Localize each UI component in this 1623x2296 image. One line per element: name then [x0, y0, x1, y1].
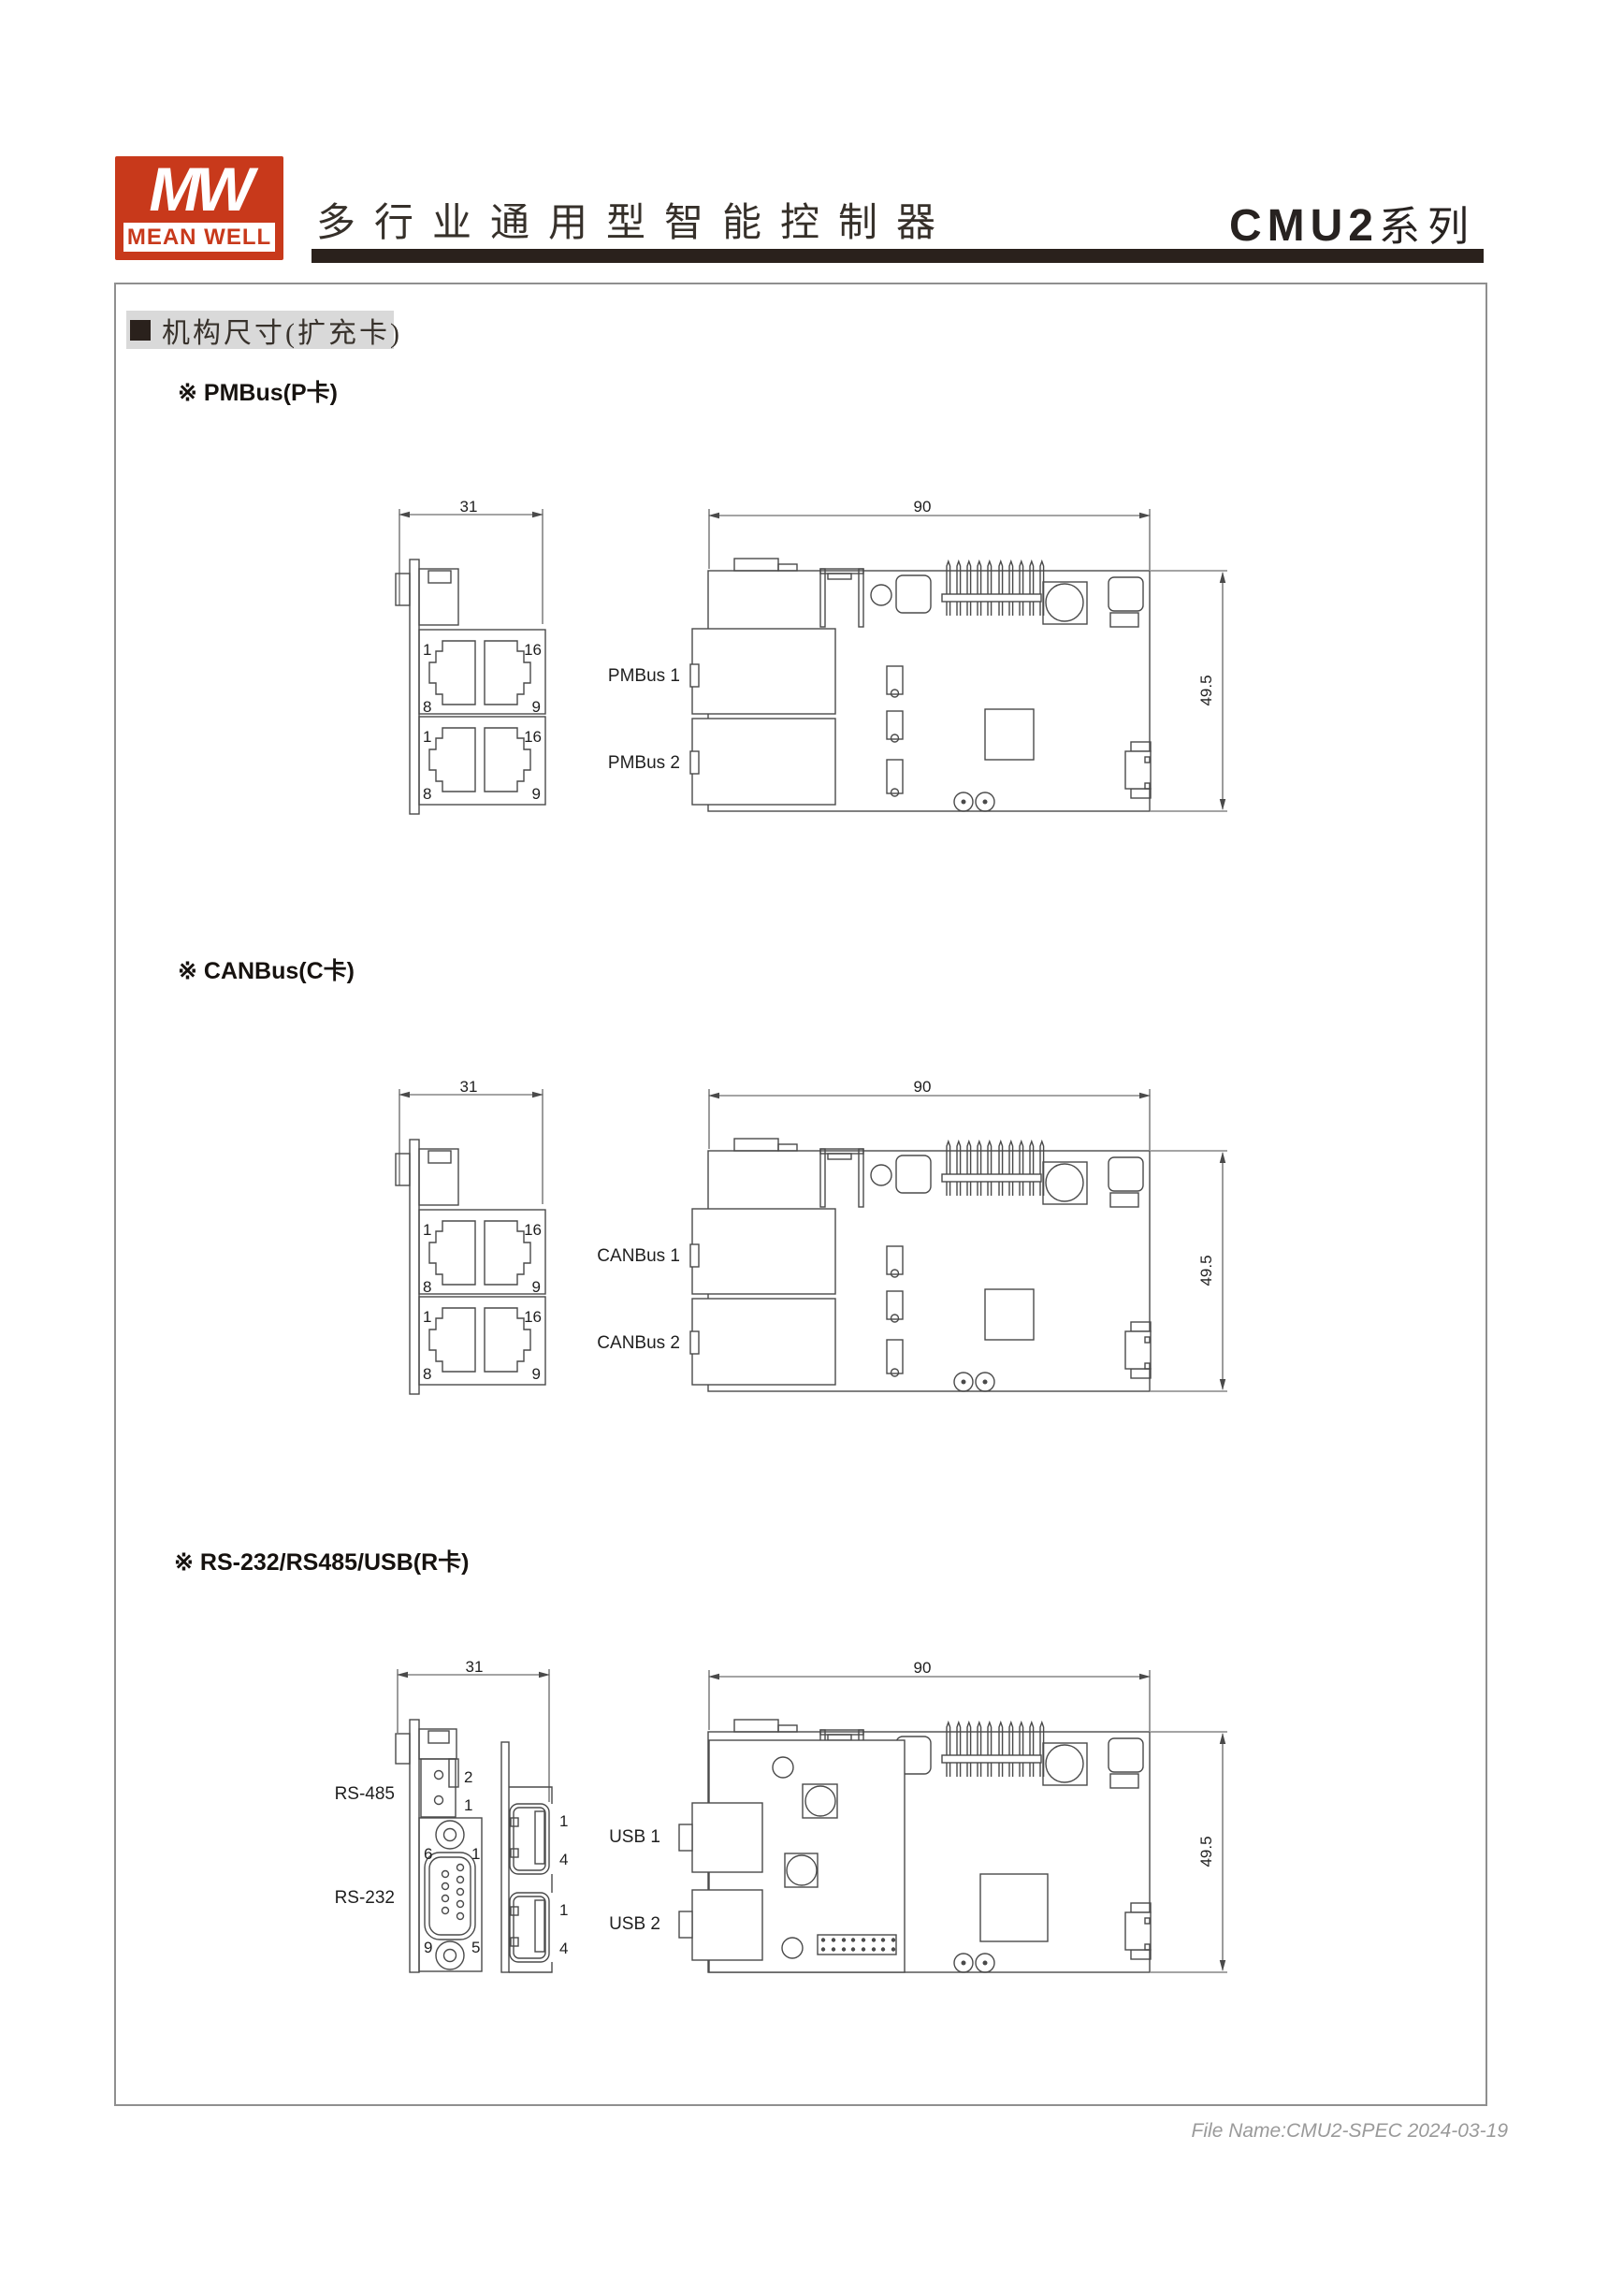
logo-brand-name: MEAN WELL	[127, 225, 271, 251]
square-bullet-icon	[130, 320, 151, 341]
series-model: CMU2	[1229, 201, 1379, 251]
subsection-canbus-heading: ※ CANBus(C卡)	[178, 952, 355, 986]
rs485-terminal	[421, 1759, 456, 1817]
datasheet-page: MW MEAN WELL 多行业通用型智能控制器 CMU2系列 机构尺寸(扩充卡…	[0, 0, 1623, 2296]
rs232-rs485-usb-card-drawing: USB 1 USB 2 31 2 1	[337, 1647, 1244, 1993]
file-name-footer: File Name:CMU2-SPEC 2024-03-19	[115, 2120, 1508, 2143]
title-underline-bar	[312, 249, 1484, 263]
series-title: CMU2系列	[1229, 193, 1476, 253]
canbus-card-drawing: CANBus 1 CANBus 2	[384, 1067, 1244, 1403]
usb1-pin4: 4	[559, 1851, 568, 1868]
rs232-label: RS-232	[335, 1888, 395, 1908]
section-header-mechanical: 机构尺寸(扩充卡)	[126, 311, 394, 349]
db9-pin1: 1	[471, 1845, 480, 1863]
rs485-pin2: 2	[464, 1768, 472, 1786]
db9-pin9: 9	[424, 1939, 432, 1956]
r-card-board-components: USB 1 USB 2	[609, 1730, 1048, 1972]
mw-logo-icon: MW	[115, 153, 283, 222]
db9-pin6: 6	[424, 1845, 432, 1863]
logo-strip: MEAN WELL	[123, 223, 275, 252]
db9-pin5: 5	[471, 1939, 480, 1956]
r-card-front-view: 31 2 1 6 1 9	[335, 1658, 569, 1972]
usb2-label: USB 2	[609, 1914, 660, 1934]
series-suffix: 系列	[1379, 204, 1476, 250]
usb2-pin1: 1	[559, 1901, 568, 1919]
pmbus-card-drawing: PMBus 1 PMBus 2	[384, 487, 1244, 823]
section-header-label: 机构尺寸(扩充卡)	[162, 310, 402, 351]
port1-label: CANBus 1	[597, 1246, 680, 1266]
usb1-connector	[692, 1803, 762, 1872]
port1-label: PMBus 1	[608, 666, 680, 686]
usb2-pin4: 4	[559, 1940, 568, 1957]
mean-well-logo: MW MEAN WELL	[115, 156, 283, 260]
page-title: 多行业通用型智能控制器	[316, 191, 954, 248]
subsection-pmbus-heading: ※ PMBus(P卡)	[178, 374, 338, 408]
usb1-label: USB 1	[609, 1827, 660, 1847]
port2-label: CANBus 2	[597, 1333, 680, 1353]
rs485-label: RS-485	[335, 1784, 395, 1804]
subsection-rs232-heading: ※ RS-232/RS485/USB(R卡)	[174, 1544, 469, 1577]
usb2-connector	[692, 1890, 762, 1960]
rs485-pin1: 1	[464, 1796, 472, 1814]
usb1-pin1: 1	[559, 1812, 568, 1830]
dim-width-label: 31	[466, 1658, 484, 1676]
port2-label: PMBus 2	[608, 753, 680, 773]
